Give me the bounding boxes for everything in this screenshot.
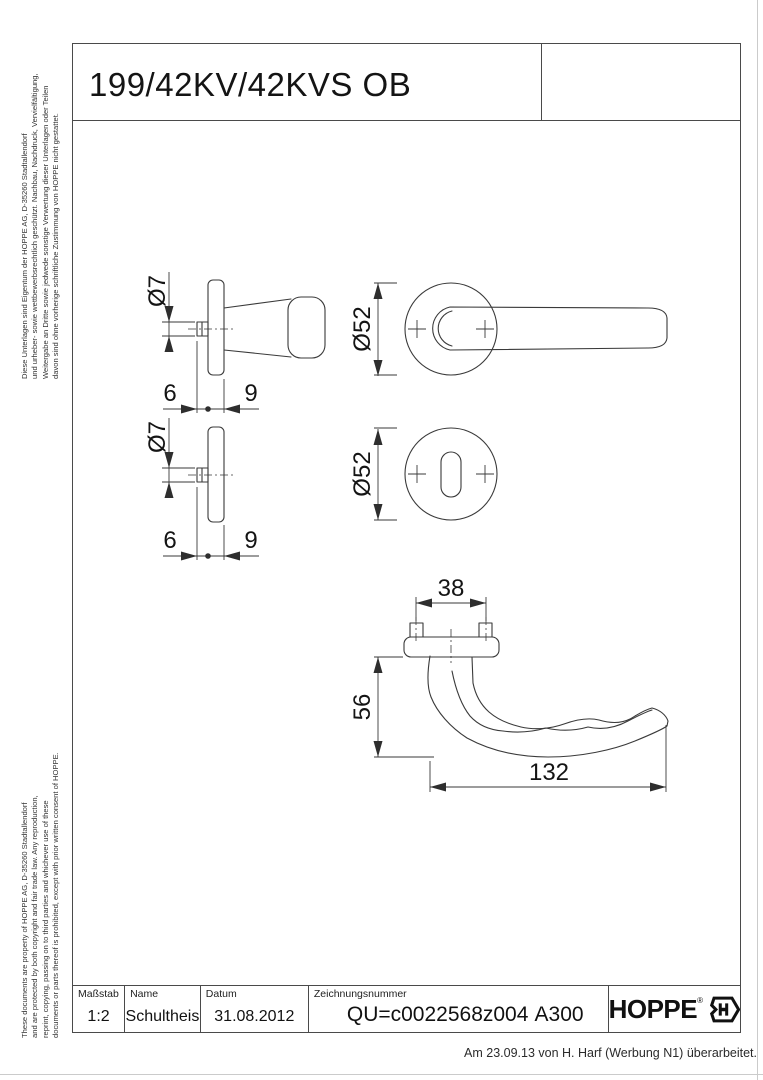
dim-label-pin-diameter: Ø7 (144, 275, 171, 307)
dim-label-6: 6 (163, 527, 176, 554)
handle-side-view: Ø7 6 9 (144, 272, 325, 414)
handle-front-view: Ø52 (349, 283, 667, 376)
revision-note: Am 23.09.13 von H. Harf (Werbung N1) übe… (464, 1046, 757, 1060)
dim-label-rose-diameter: Ø52 (349, 306, 376, 351)
dim-label-132: 132 (529, 759, 569, 786)
dim-label-38: 38 (438, 575, 465, 602)
dim-label-rose-diameter: Ø52 (349, 451, 376, 496)
rose-front-view: Ø52 (349, 428, 497, 520)
dim-label-9: 9 (244, 380, 257, 407)
handle-top-view: 38 56 132 (349, 575, 668, 792)
dim-label-pin-diameter: Ø7 (144, 421, 171, 453)
paper-edge-right (757, 0, 758, 1080)
dim-label-9: 9 (244, 527, 257, 554)
rose-side-view: Ø7 6 9 (144, 418, 259, 561)
dim-label-6: 6 (163, 380, 176, 407)
drawing-sheet: Diese Unterlagen sind Eigentum der HOPPE… (0, 0, 763, 1080)
technical-views: Ø7 6 9 Ø52 (0, 0, 763, 1080)
dim-label-56: 56 (349, 694, 376, 721)
paper-edge-bottom (0, 1074, 763, 1075)
